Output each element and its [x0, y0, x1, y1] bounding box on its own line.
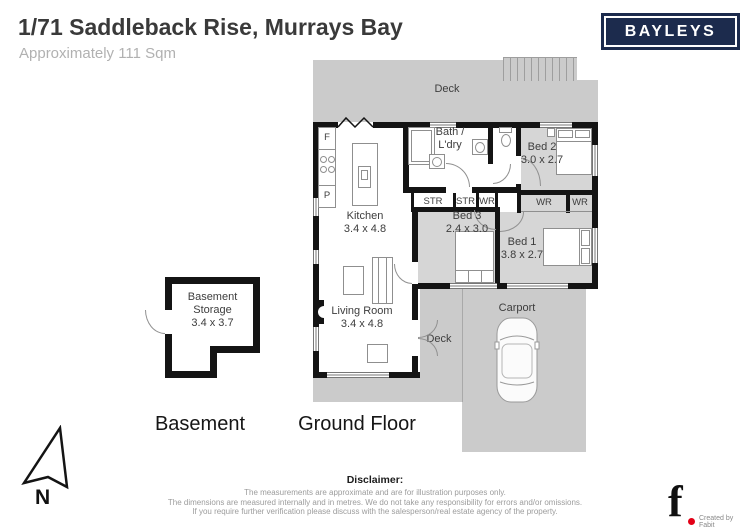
basement-wall-right [253, 277, 260, 353]
bed3-dims: 2.4 x 3.0 [437, 223, 497, 236]
bed2-nightstand [547, 128, 555, 137]
north-label: N [35, 486, 50, 510]
bed3-footer-divider [468, 270, 469, 282]
basement-wall-bottom [165, 371, 217, 378]
floor-label-basement: Basement [150, 413, 250, 436]
floor-label-ground: Ground Floor [298, 413, 416, 436]
basement-storage-line1: Basement [172, 291, 253, 304]
floorplan-page: 1/71 Saddleback Rise, Murrays Bay Approx… [0, 0, 749, 530]
page-title: 1/71 Saddleback Rise, Murrays Bay [18, 14, 403, 41]
toilet-bowl [501, 134, 511, 147]
window [507, 283, 568, 289]
bed2-label: Bed 2 3.0 x 2.7 [512, 141, 572, 167]
bed1-label: Bed 1 3.8 x 2.7 [492, 236, 552, 262]
washing-machine-door [432, 157, 442, 167]
bed3-footer-divider [481, 270, 482, 282]
door-arc-bath [446, 163, 470, 187]
wr-bifold-line [521, 211, 592, 212]
coffee-table [343, 266, 364, 295]
basement-storage-line2: Storage [172, 304, 253, 317]
deck-stairs [503, 57, 577, 81]
basement-storage-dims: 3.4 x 3.7 [172, 317, 253, 330]
page-subtitle: Approximately 111 Sqm [19, 45, 176, 62]
window [313, 250, 319, 264]
disclaimer-line2: The dimensions are measured internally a… [75, 498, 675, 508]
kitchen-sink-basin [361, 170, 368, 180]
window [592, 228, 598, 263]
door-arc-wc [493, 164, 511, 184]
bath-label: Bath / L'dry [425, 126, 475, 152]
sofa [372, 257, 393, 304]
bed2-name: Bed 2 [512, 141, 572, 154]
wall-wc-divider [488, 122, 493, 164]
living-dims: 3.4 x 4.8 [322, 318, 402, 331]
bed1-pillow [581, 248, 590, 264]
fabit-logo-glyph: f [668, 480, 683, 524]
basement-wall-top [165, 277, 260, 284]
basement-storage-label: Basement Storage 3.4 x 3.7 [172, 291, 253, 330]
wr2-label: WR [568, 197, 592, 208]
kitchen-dims: 3.4 x 4.8 [330, 223, 400, 236]
wr1-label: WR [521, 197, 567, 208]
wall-wr-top [517, 190, 592, 195]
fabit-credit-text: Created by Fabit [699, 515, 749, 529]
disclaimer-title: Disclaimer: [75, 474, 675, 486]
cooktop-burner [328, 166, 335, 173]
cooktop-burner [320, 166, 327, 173]
basement-wall-left-lower [165, 334, 172, 378]
basement-wall-notch-h [210, 346, 260, 353]
basement-wall-left-upper [165, 277, 172, 310]
str2-label: STR [454, 196, 477, 207]
living-name: Living Room [322, 305, 402, 318]
door-arc-living [394, 264, 412, 284]
window [450, 283, 497, 289]
bed1-blanket-line [579, 228, 580, 266]
bed1-name: Bed 1 [492, 236, 552, 249]
deck-top-label: Deck [417, 83, 477, 96]
bed2-dims: 3.0 x 2.7 [512, 154, 572, 167]
carport-label: Carport [487, 302, 547, 315]
window [313, 327, 319, 351]
bath-name-line2: L'dry [425, 139, 475, 152]
north-arrow-icon [20, 425, 72, 495]
fridge-label: F [318, 132, 336, 143]
kitchen-label: Kitchen 3.4 x 4.8 [330, 210, 400, 236]
cooktop-burner [320, 156, 327, 163]
door-gap-bed3 [412, 262, 418, 284]
wr-hall-label: WR [477, 196, 497, 207]
door-arc-basement [145, 310, 165, 334]
pantry-label: P [318, 190, 336, 201]
fabit-logo-dot [688, 518, 695, 525]
bed3-footer-line [455, 270, 494, 271]
bed3-name: Bed 3 [437, 210, 497, 223]
kitchen-name: Kitchen [330, 210, 400, 223]
disclaimer-line1: The measurements are approximate and are… [75, 488, 675, 498]
str1-label: STR [413, 196, 453, 207]
living-label: Living Room 3.4 x 4.8 [322, 305, 402, 331]
window [592, 145, 598, 176]
basin-bowl [475, 142, 485, 153]
disclaimer-line3: If you require further verification plea… [75, 507, 675, 517]
bed1-dims: 3.8 x 2.7 [492, 249, 552, 262]
door-gap-bath [446, 187, 472, 193]
cooktop-burner [328, 156, 335, 163]
bed2-pillow [575, 130, 590, 138]
deck-bottom-area [313, 378, 420, 402]
bayleys-logo: BAYLEYS [601, 13, 740, 50]
toilet-cistern [499, 127, 512, 133]
armchair [367, 344, 388, 363]
bed1-pillow [581, 230, 590, 246]
bed2-pillow [558, 130, 573, 138]
wall-break-zigzag-icon [337, 115, 374, 129]
disclaimer: Disclaimer: The measurements are approxi… [75, 474, 675, 517]
bayleys-logo-frame: BAYLEYS [604, 16, 737, 47]
bed3-bed [455, 231, 494, 283]
deck-top-corner [577, 80, 598, 125]
car-icon [494, 316, 540, 404]
window [327, 372, 389, 378]
bed3-label: Bed 3 2.4 x 3.0 [437, 210, 497, 236]
bath-name-line1: Bath / [425, 126, 475, 139]
bayleys-logo-text: BAYLEYS [625, 23, 717, 41]
